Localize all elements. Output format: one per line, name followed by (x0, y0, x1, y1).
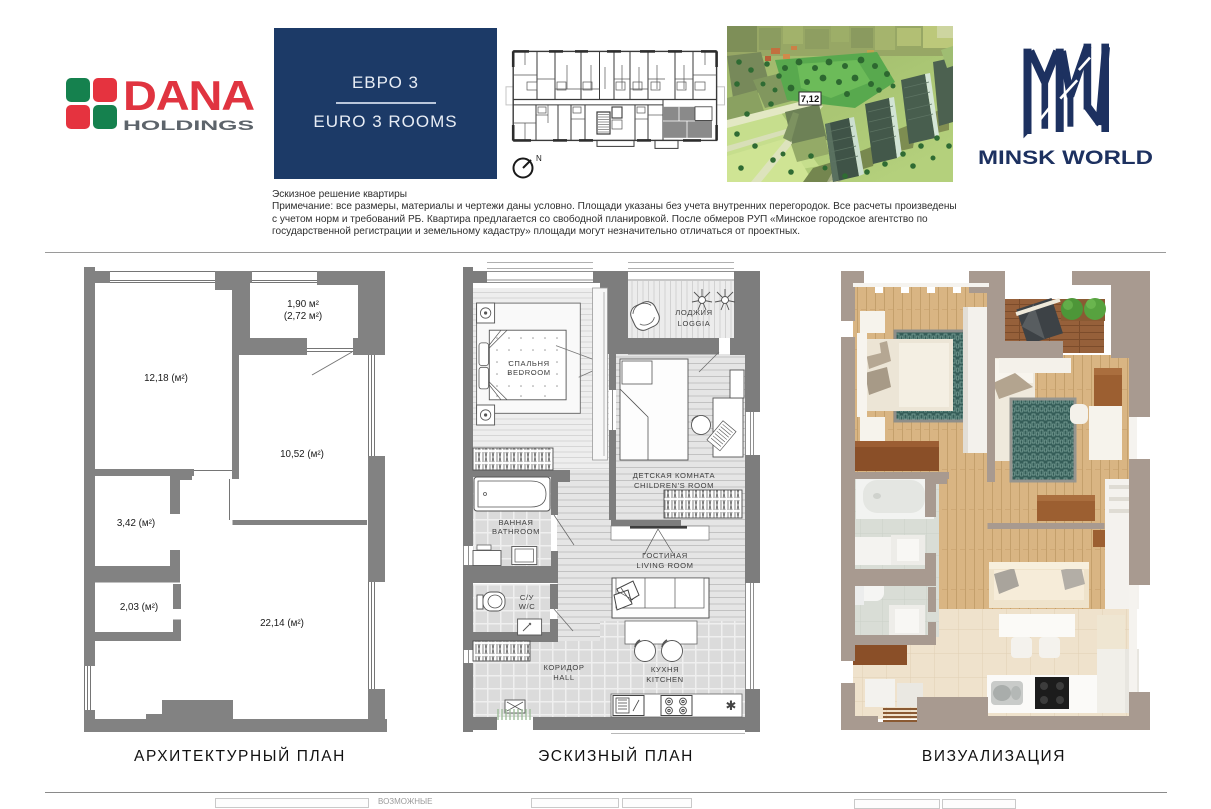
svg-text:КОРИДОР: КОРИДОР (543, 663, 584, 672)
svg-text:N: N (536, 154, 542, 163)
svg-text:CHILDREN'S ROOM: CHILDREN'S ROOM (634, 481, 714, 490)
svg-text:(2,72 м²): (2,72 м²) (284, 311, 322, 322)
svg-text:LOGGIA: LOGGIA (678, 319, 711, 328)
svg-text:HOLDINGS: HOLDINGS (123, 117, 254, 133)
svg-text:HALL: HALL (553, 673, 574, 682)
svg-text:1,90 м²: 1,90 м² (287, 299, 320, 310)
svg-text:✱: ✱ (726, 698, 737, 713)
svg-text:BEDROOM: BEDROOM (507, 368, 550, 377)
svg-text:DANA: DANA (123, 77, 255, 119)
svg-text:3,42 (м²): 3,42 (м²) (117, 518, 155, 529)
svg-text:ГОСТИНАЯ: ГОСТИНАЯ (642, 551, 688, 560)
svg-text:ВАННАЯ: ВАННАЯ (499, 518, 534, 527)
svg-text:LIVING ROOM: LIVING ROOM (636, 561, 693, 570)
svg-text:BATHROOM: BATHROOM (492, 527, 540, 536)
svg-text:С/У: С/У (520, 593, 534, 602)
svg-text:2,03 (м²): 2,03 (м²) (120, 602, 158, 613)
svg-text:10,52 (м²): 10,52 (м²) (280, 449, 324, 460)
svg-text:7,12: 7,12 (801, 94, 820, 105)
svg-text:СПАЛЬНЯ: СПАЛЬНЯ (508, 359, 549, 368)
svg-text:22,14 (м²): 22,14 (м²) (260, 618, 304, 629)
svg-text:КУХНЯ: КУХНЯ (651, 665, 679, 674)
svg-text:ДЕТСКАЯ КОМНАТА: ДЕТСКАЯ КОМНАТА (633, 471, 716, 480)
svg-text:W/C: W/C (519, 602, 536, 611)
svg-text:KITCHEN: KITCHEN (646, 675, 684, 684)
svg-text:ЛОДЖИЯ: ЛОДЖИЯ (675, 308, 712, 317)
svg-text:12,18 (м²): 12,18 (м²) (144, 373, 188, 384)
svg-text:MINSK WORLD: MINSK WORLD (978, 148, 1153, 168)
